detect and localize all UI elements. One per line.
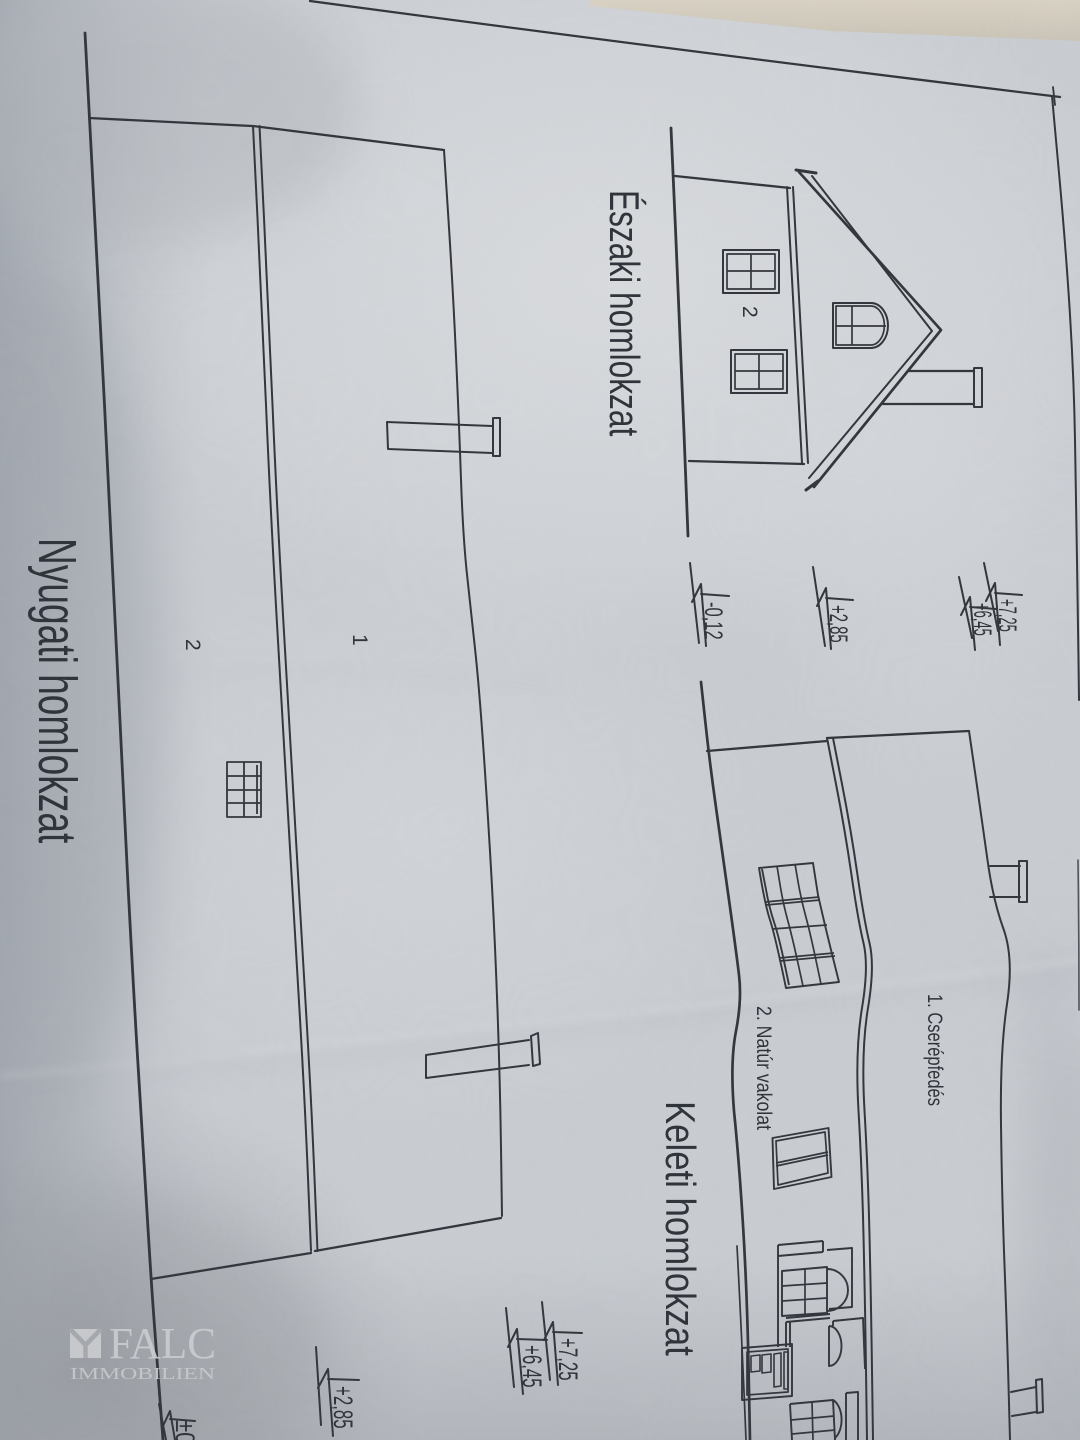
svg-text:2: 2	[181, 639, 204, 651]
svg-text:±0: ±0	[169, 1420, 199, 1440]
svg-text:Északi homlokzat: Északi homlokzat	[601, 190, 648, 436]
svg-text:2. Natúr vakolat: 2. Natúr vakolat	[751, 1006, 774, 1131]
svg-text:+7,25: +7,25	[552, 1338, 582, 1381]
svg-text:+7,25: +7,25	[994, 599, 1022, 632]
svg-text:2: 2	[738, 306, 761, 318]
svg-text:Keleti homlokzat: Keleti homlokzat	[657, 1101, 704, 1356]
svg-text:+6,45: +6,45	[969, 603, 997, 636]
svg-text:FALC: FALC	[109, 1319, 216, 1368]
svg-text:+6,45: +6,45	[516, 1345, 546, 1388]
svg-text:1. Cserépfedés: 1. Cserépfedés	[922, 994, 945, 1106]
svg-text:+2,85: +2,85	[327, 1386, 357, 1429]
svg-text:-0,12: -0,12	[700, 602, 728, 640]
svg-text:IMMOBILIEN: IMMOBILIEN	[70, 1364, 215, 1383]
svg-text:+2,85: +2,85	[825, 605, 853, 643]
svg-text:Nyugati homlokzat: Nyugati homlokzat	[28, 538, 89, 843]
svg-text:1: 1	[348, 634, 371, 646]
